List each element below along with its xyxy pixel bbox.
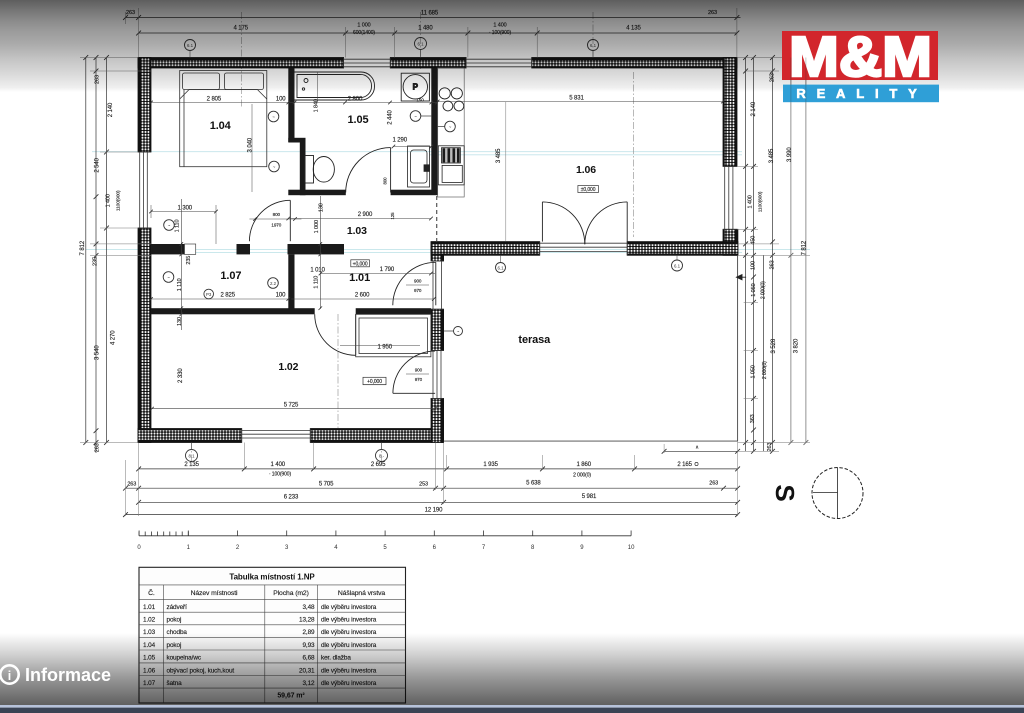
svg-text:~: ~ — [167, 275, 170, 280]
svg-text:2 000(0): 2 000(0) — [761, 281, 767, 299]
svg-text:8.-: 8.- — [379, 453, 385, 458]
svg-text:REALITY: REALITY — [796, 86, 927, 101]
svg-text:363: 363 — [750, 414, 756, 423]
svg-text:2 695: 2 695 — [371, 462, 386, 468]
svg-text:253: 253 — [419, 481, 428, 487]
svg-text:1 790: 1 790 — [380, 267, 395, 273]
svg-text:+0,000: +0,000 — [353, 261, 368, 267]
svg-text:150: 150 — [416, 98, 424, 103]
svg-text:2 540: 2 540 — [94, 157, 100, 172]
svg-text:~: ~ — [457, 329, 460, 334]
svg-text:263: 263 — [769, 260, 775, 269]
svg-text:5 725: 5 725 — [284, 402, 299, 408]
svg-text:2 330: 2 330 — [178, 368, 184, 383]
svg-text:2 000(0): 2 000(0) — [573, 473, 591, 479]
svg-text:Informace: Informace — [25, 665, 111, 685]
svg-text:900: 900 — [414, 278, 422, 283]
svg-text:5 981: 5 981 — [582, 494, 597, 500]
svg-text:3 485: 3 485 — [769, 148, 775, 163]
svg-text:263: 263 — [767, 443, 773, 452]
svg-text:3 528: 3 528 — [771, 338, 777, 353]
svg-text:1970: 1970 — [271, 222, 281, 227]
svg-text:100: 100 — [276, 97, 286, 103]
svg-text:130: 130 — [318, 203, 324, 212]
svg-text:235: 235 — [186, 256, 192, 265]
svg-text:970: 970 — [415, 377, 423, 382]
svg-text:100: 100 — [750, 261, 756, 270]
svg-text:7 812: 7 812 — [802, 240, 808, 255]
svg-text:1 000: 1 000 — [314, 220, 320, 233]
svg-text:2 140: 2 140 — [751, 101, 757, 116]
svg-text:2 140: 2 140 — [108, 102, 114, 117]
svg-text:6.1: 6.1 — [497, 265, 504, 270]
svg-text:3 820: 3 820 — [794, 338, 800, 353]
svg-text:~: ~ — [273, 164, 276, 169]
svg-text:~: ~ — [414, 114, 417, 119]
svg-text:dle výběru investora: dle výběru investora — [321, 617, 377, 624]
svg-text:125: 125 — [390, 212, 395, 220]
svg-text:100: 100 — [276, 293, 286, 299]
svg-text:∧: ∧ — [695, 445, 699, 451]
svg-text:Plocha (m2): Plocha (m2) — [273, 590, 309, 597]
svg-text:1.01: 1.01 — [143, 604, 156, 611]
svg-text:263: 263 — [709, 480, 718, 486]
svg-text:~: ~ — [272, 114, 275, 119]
svg-text:1.02: 1.02 — [143, 617, 156, 624]
svg-text:M&M: M&M — [789, 25, 932, 89]
svg-text:1.06: 1.06 — [576, 164, 596, 176]
svg-text:5 705: 5 705 — [319, 481, 334, 487]
svg-text:263: 263 — [127, 481, 136, 487]
svg-text:13,28: 13,28 — [299, 617, 315, 624]
svg-text:1 840: 1 840 — [314, 99, 320, 112]
svg-text:1 110: 1 110 — [175, 220, 181, 233]
svg-text:Tabulka místností 1.NP: Tabulka místností 1.NP — [229, 573, 315, 582]
svg-text:1.02: 1.02 — [278, 361, 298, 373]
svg-text:+0,000: +0,000 — [367, 379, 382, 385]
svg-text:3,48: 3,48 — [302, 604, 315, 611]
svg-text:Název místnosti: Název místnosti — [191, 590, 238, 597]
svg-text:8.1: 8.1 — [188, 453, 195, 458]
svg-text:6.1: 6.1 — [674, 263, 681, 268]
svg-text:970: 970 — [414, 288, 422, 293]
svg-text:±0,000: ±0,000 — [581, 187, 596, 193]
svg-text:3 990: 3 990 — [787, 147, 793, 162]
svg-text:1100(900): 1100(900) — [116, 190, 122, 211]
svg-text:1100(600): 1100(600) — [758, 191, 764, 212]
svg-text:1 110: 1 110 — [314, 276, 320, 289]
svg-text:2 000(0): 2 000(0) — [762, 361, 768, 379]
svg-text:· 100(900): · 100(900) — [269, 472, 292, 478]
svg-text:1 935: 1 935 — [483, 462, 498, 468]
svg-text:dle výběru investora: dle výběru investora — [321, 604, 377, 611]
svg-text:800: 800 — [383, 177, 388, 185]
svg-text:1 290: 1 290 — [392, 138, 407, 144]
svg-text:900: 900 — [415, 368, 423, 373]
svg-text:800: 800 — [273, 212, 281, 217]
svg-text:12 190: 12 190 — [425, 508, 444, 514]
svg-text:1.04: 1.04 — [210, 120, 232, 132]
svg-text:1 400: 1 400 — [106, 194, 112, 207]
svg-text:5 831: 5 831 — [569, 96, 584, 102]
svg-text:2 440: 2 440 — [388, 109, 394, 124]
svg-text:2 165: 2 165 — [677, 462, 692, 468]
svg-text:terasa: terasa — [518, 334, 551, 346]
svg-text:1 050: 1 050 — [751, 365, 757, 378]
svg-text:1.07: 1.07 — [220, 270, 241, 282]
svg-text:1 050: 1 050 — [751, 283, 757, 296]
svg-text:3 485: 3 485 — [496, 148, 502, 163]
svg-text:P3: P3 — [206, 292, 212, 297]
svg-text:2 800: 2 800 — [348, 97, 363, 103]
svg-text:1.03: 1.03 — [347, 225, 367, 237]
svg-text:3 040: 3 040 — [248, 137, 254, 152]
svg-text:1.05: 1.05 — [347, 114, 368, 126]
svg-text:2.2: 2.2 — [270, 281, 277, 286]
svg-text:2 135: 2 135 — [184, 462, 199, 468]
svg-text:1 010: 1 010 — [310, 268, 325, 274]
svg-text:Nášlapná vrstva: Nášlapná vrstva — [338, 590, 386, 597]
svg-text:4 270: 4 270 — [111, 330, 117, 345]
svg-text:263: 263 — [95, 443, 101, 452]
svg-text:1 860: 1 860 — [576, 462, 591, 468]
svg-text:i: i — [8, 669, 11, 683]
svg-text:1 110: 1 110 — [177, 278, 183, 291]
svg-text:2 600: 2 600 — [355, 293, 370, 299]
svg-text:5 638: 5 638 — [526, 480, 541, 486]
svg-text:pokoj: pokoj — [167, 617, 182, 624]
svg-text:2 900: 2 900 — [358, 212, 373, 218]
svg-text:3 540: 3 540 — [94, 345, 100, 360]
svg-text:7 812: 7 812 — [80, 240, 86, 255]
svg-text:zádveří: zádveří — [167, 604, 188, 611]
svg-text:1 400: 1 400 — [748, 195, 754, 208]
svg-text:450: 450 — [750, 236, 756, 245]
svg-text:1 400: 1 400 — [271, 462, 286, 468]
svg-text:6 233: 6 233 — [284, 494, 299, 500]
svg-text:2 805: 2 805 — [207, 97, 222, 103]
svg-text:~: ~ — [168, 223, 171, 228]
svg-text:10: 10 — [628, 545, 635, 551]
svg-text:1 300: 1 300 — [178, 205, 193, 211]
svg-text:S: S — [770, 484, 800, 501]
svg-text:130: 130 — [177, 317, 183, 326]
svg-text:~: ~ — [449, 124, 452, 129]
svg-text:Č.: Č. — [148, 588, 155, 597]
svg-text:2 825: 2 825 — [220, 293, 235, 299]
svg-text:235: 235 — [92, 257, 98, 266]
